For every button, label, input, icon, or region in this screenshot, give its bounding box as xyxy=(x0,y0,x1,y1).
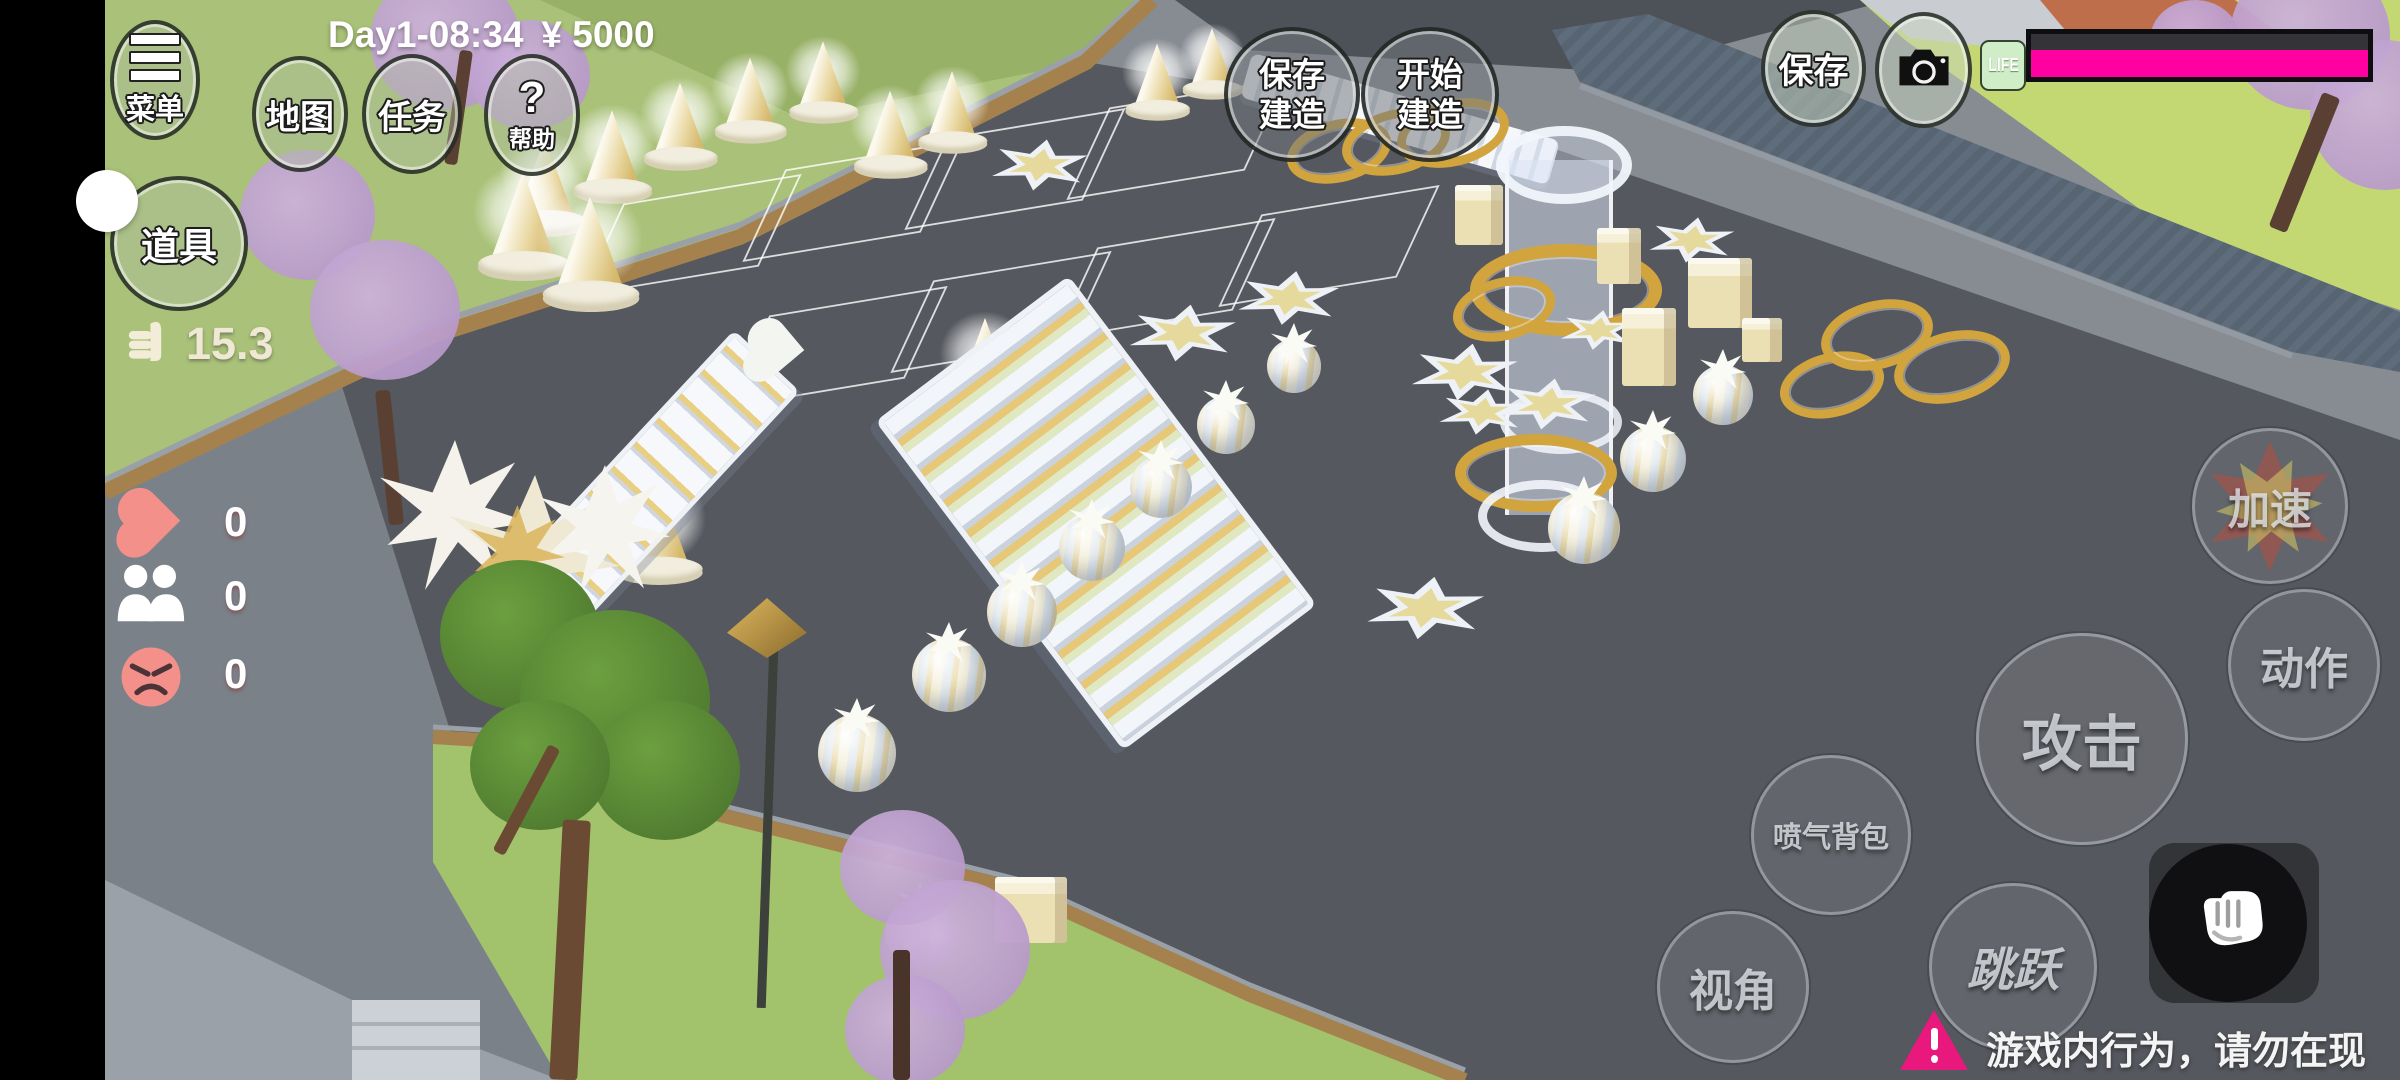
start-build-button[interactable]: 开始建造 xyxy=(1361,27,1499,162)
view-button[interactable]: 视角 xyxy=(1657,911,1809,1063)
jetpack-button[interactable]: 喷气背包 xyxy=(1751,755,1911,915)
money: ¥ 5000 xyxy=(541,14,654,56)
gift-box xyxy=(1597,228,1641,284)
people-count: 0 xyxy=(224,572,247,620)
people-icon xyxy=(114,562,186,628)
star-platform xyxy=(1121,301,1245,366)
start-build-label: 开始建造 xyxy=(1395,55,1465,134)
life-label: LIFE xyxy=(1980,40,2026,91)
glowing-cone-tree xyxy=(900,52,1005,165)
boost-button[interactable]: 加速 xyxy=(2192,428,2348,584)
task-label: 任务 xyxy=(378,90,446,139)
camera-button[interactable] xyxy=(1875,12,1972,128)
map-button[interactable]: 地图 xyxy=(252,56,348,172)
glowing-cone-tree xyxy=(517,169,664,327)
touch-indicator[interactable] xyxy=(76,170,138,232)
striped-ball xyxy=(1059,515,1125,581)
menu-label: 菜单 xyxy=(126,86,184,128)
angry-face-icon xyxy=(120,646,182,713)
striped-ball xyxy=(1693,365,1753,425)
action-label: 动作 xyxy=(2260,633,2348,697)
game-screen: 菜单 地图 任务 ? 帮助 道具 Day1-08:34 ¥ 5000 15.3 … xyxy=(0,0,2400,1080)
striped-ball xyxy=(1197,396,1255,454)
striped-ball xyxy=(1130,456,1192,518)
striped-ball xyxy=(818,714,896,792)
gift-box xyxy=(1742,318,1782,362)
hamburger-icon xyxy=(129,33,181,82)
gift-box xyxy=(1622,308,1676,386)
save-label: 保存 xyxy=(1778,43,1848,94)
speed-value: 15.3 xyxy=(186,318,274,370)
help-label: 帮助 xyxy=(509,120,555,154)
jump-label: 跳跃 xyxy=(1967,934,2059,1000)
day-time: Day1-08:34 xyxy=(328,14,523,56)
love-count: 0 xyxy=(224,498,247,546)
jetpack-label: 喷气背包 xyxy=(1773,814,1889,856)
anger-count: 0 xyxy=(224,650,247,698)
striped-ball xyxy=(1548,492,1620,564)
save-build-button[interactable]: 保存建造 xyxy=(1224,27,1360,162)
attack-label: 攻击 xyxy=(2022,696,2142,783)
speed-icon xyxy=(124,316,172,370)
striped-ball xyxy=(1267,339,1321,393)
striped-ball xyxy=(987,577,1057,647)
fist-icon xyxy=(2190,886,2266,960)
star-platform xyxy=(984,136,1096,194)
life-bar-fill xyxy=(2031,50,2368,77)
action-button[interactable]: 动作 xyxy=(2228,589,2380,741)
life-bar xyxy=(2026,29,2373,82)
view-label: 视角 xyxy=(1689,955,1777,1019)
star-platform xyxy=(1230,267,1348,328)
letterbox-bar xyxy=(0,0,105,1080)
props-label: 道具 xyxy=(141,216,217,271)
map-label: 地图 xyxy=(266,90,334,139)
striped-ball xyxy=(1620,426,1686,492)
help-button[interactable]: ? 帮助 xyxy=(484,54,580,176)
striped-ball xyxy=(912,638,986,712)
attack-button[interactable]: 攻击 xyxy=(1976,633,2188,845)
task-button[interactable]: 任务 xyxy=(362,54,462,174)
menu-button[interactable]: 菜单 xyxy=(110,20,200,140)
question-mark-icon: ? xyxy=(519,76,546,120)
star-platform xyxy=(1358,572,1495,643)
punch-button[interactable] xyxy=(2149,843,2319,1003)
status-bar: Day1-08:34 ¥ 5000 xyxy=(328,14,655,56)
save-button[interactable]: 保存 xyxy=(1761,10,1866,127)
warning-text: 游戏内行为，请勿在现实中模仿 xyxy=(1986,1020,2400,1080)
save-build-label: 保存建造 xyxy=(1257,55,1327,134)
gift-box xyxy=(1455,185,1503,245)
star-platform xyxy=(1642,214,1741,266)
star-platform xyxy=(1492,375,1604,433)
boost-label: 加速 xyxy=(2228,476,2312,537)
camera-icon xyxy=(1895,45,1953,95)
